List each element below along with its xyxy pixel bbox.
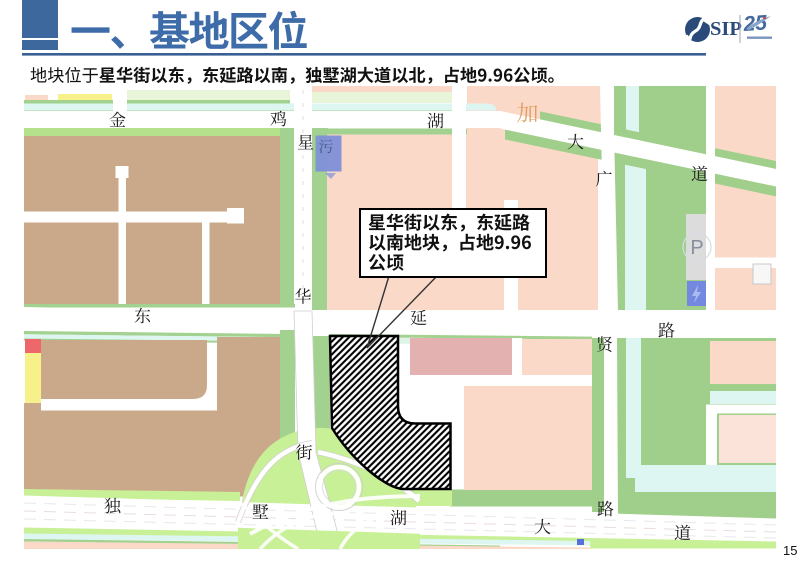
svg-text:15: 15 xyxy=(783,543,797,558)
svg-text:SIP: SIP xyxy=(710,18,742,40)
svg-text:P: P xyxy=(690,237,703,259)
